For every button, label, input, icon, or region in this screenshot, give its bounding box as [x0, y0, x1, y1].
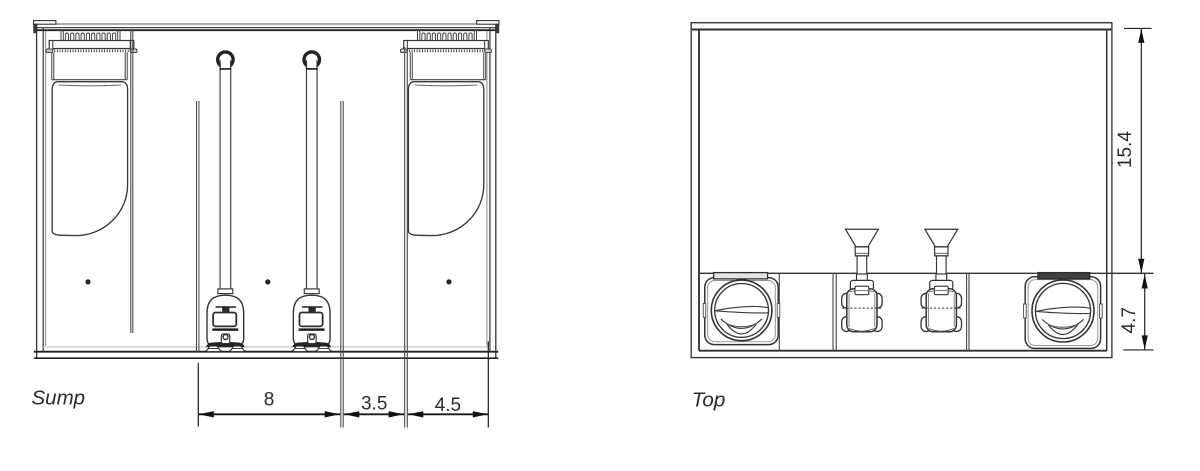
svg-text:4.5: 4.5: [435, 395, 461, 416]
svg-text:Top: Top: [692, 389, 725, 412]
svg-text:4.7: 4.7: [1119, 307, 1140, 333]
svg-text:Sump: Sump: [32, 387, 86, 410]
svg-text:3.5: 3.5: [361, 393, 387, 414]
svg-text:8: 8: [264, 390, 275, 411]
svg-text:15.4: 15.4: [1115, 131, 1136, 168]
